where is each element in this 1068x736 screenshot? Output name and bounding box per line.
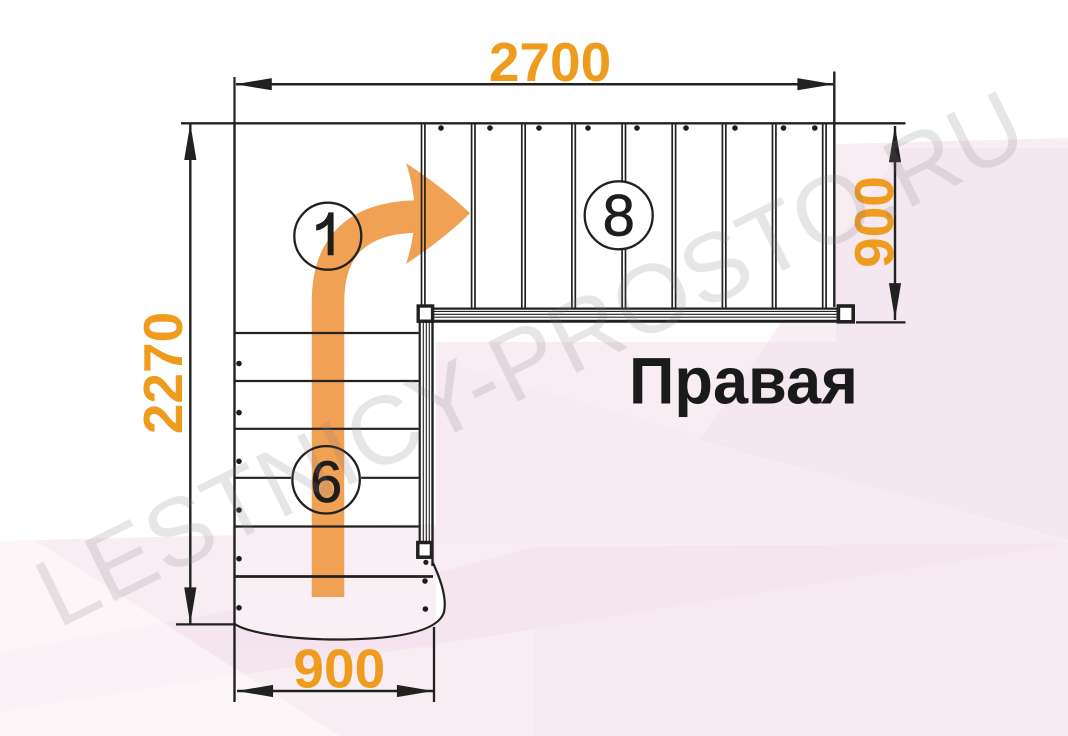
svg-text:2700: 2700 <box>489 31 611 93</box>
svg-text:8: 8 <box>603 184 635 249</box>
svg-text:Правая: Правая <box>629 344 858 418</box>
svg-text:900: 900 <box>293 638 385 700</box>
svg-text:2270: 2270 <box>132 312 194 434</box>
